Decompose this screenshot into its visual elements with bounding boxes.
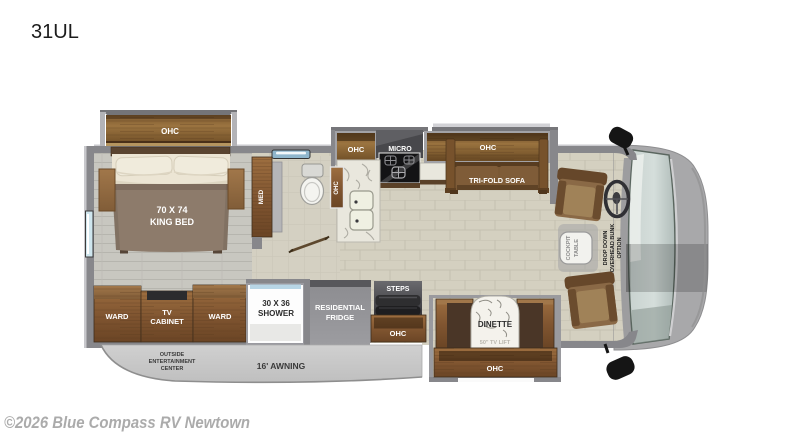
svg-text:OHC: OHC (480, 143, 497, 152)
svg-text:OHC: OHC (390, 329, 407, 338)
svg-text:70 X 74: 70 X 74 (156, 205, 187, 215)
svg-text:31UL: 31UL (31, 21, 79, 43)
svg-text:WARD: WARD (209, 312, 232, 321)
svg-text:RESIDENTIAL: RESIDENTIAL (315, 303, 365, 312)
svg-text:TRI-FOLD SOFA: TRI-FOLD SOFA (469, 178, 525, 185)
svg-text:SHOWER: SHOWER (258, 309, 294, 318)
svg-text:30 X 36: 30 X 36 (262, 299, 290, 308)
svg-text:50" TV LIFT: 50" TV LIFT (480, 340, 511, 346)
svg-text:FRIDGE: FRIDGE (326, 313, 354, 322)
svg-text:CENTER: CENTER (161, 366, 184, 372)
svg-text:©2026 Blue Compass RV Newtown: ©2026 Blue Compass RV Newtown (4, 413, 250, 432)
svg-text:OHC: OHC (487, 364, 504, 373)
svg-text:OHC: OHC (348, 145, 365, 154)
svg-text:OVERHEAD BUNK: OVERHEAD BUNK (610, 224, 616, 273)
svg-text:16' AWNING: 16' AWNING (257, 361, 306, 371)
svg-text:MED: MED (258, 189, 265, 204)
svg-text:TV: TV (162, 308, 172, 317)
svg-text:DINETTE: DINETTE (478, 320, 513, 329)
svg-text:OHC: OHC (334, 181, 340, 195)
svg-text:OPTION: OPTION (617, 237, 623, 258)
svg-text:KING BED: KING BED (150, 217, 195, 227)
svg-text:STEPS: STEPS (387, 286, 410, 293)
svg-text:CABINET: CABINET (150, 317, 184, 326)
svg-text:TABLE: TABLE (574, 239, 580, 257)
svg-text:COCKPIT: COCKPIT (566, 235, 572, 260)
svg-text:MICRO: MICRO (388, 146, 412, 153)
svg-text:ENTERTAINMENT: ENTERTAINMENT (149, 359, 196, 365)
svg-text:OUTSIDE: OUTSIDE (160, 352, 185, 358)
svg-text:WARD: WARD (106, 312, 129, 321)
svg-text:OHC: OHC (161, 127, 179, 136)
svg-text:DROP DOWN: DROP DOWN (603, 231, 609, 266)
